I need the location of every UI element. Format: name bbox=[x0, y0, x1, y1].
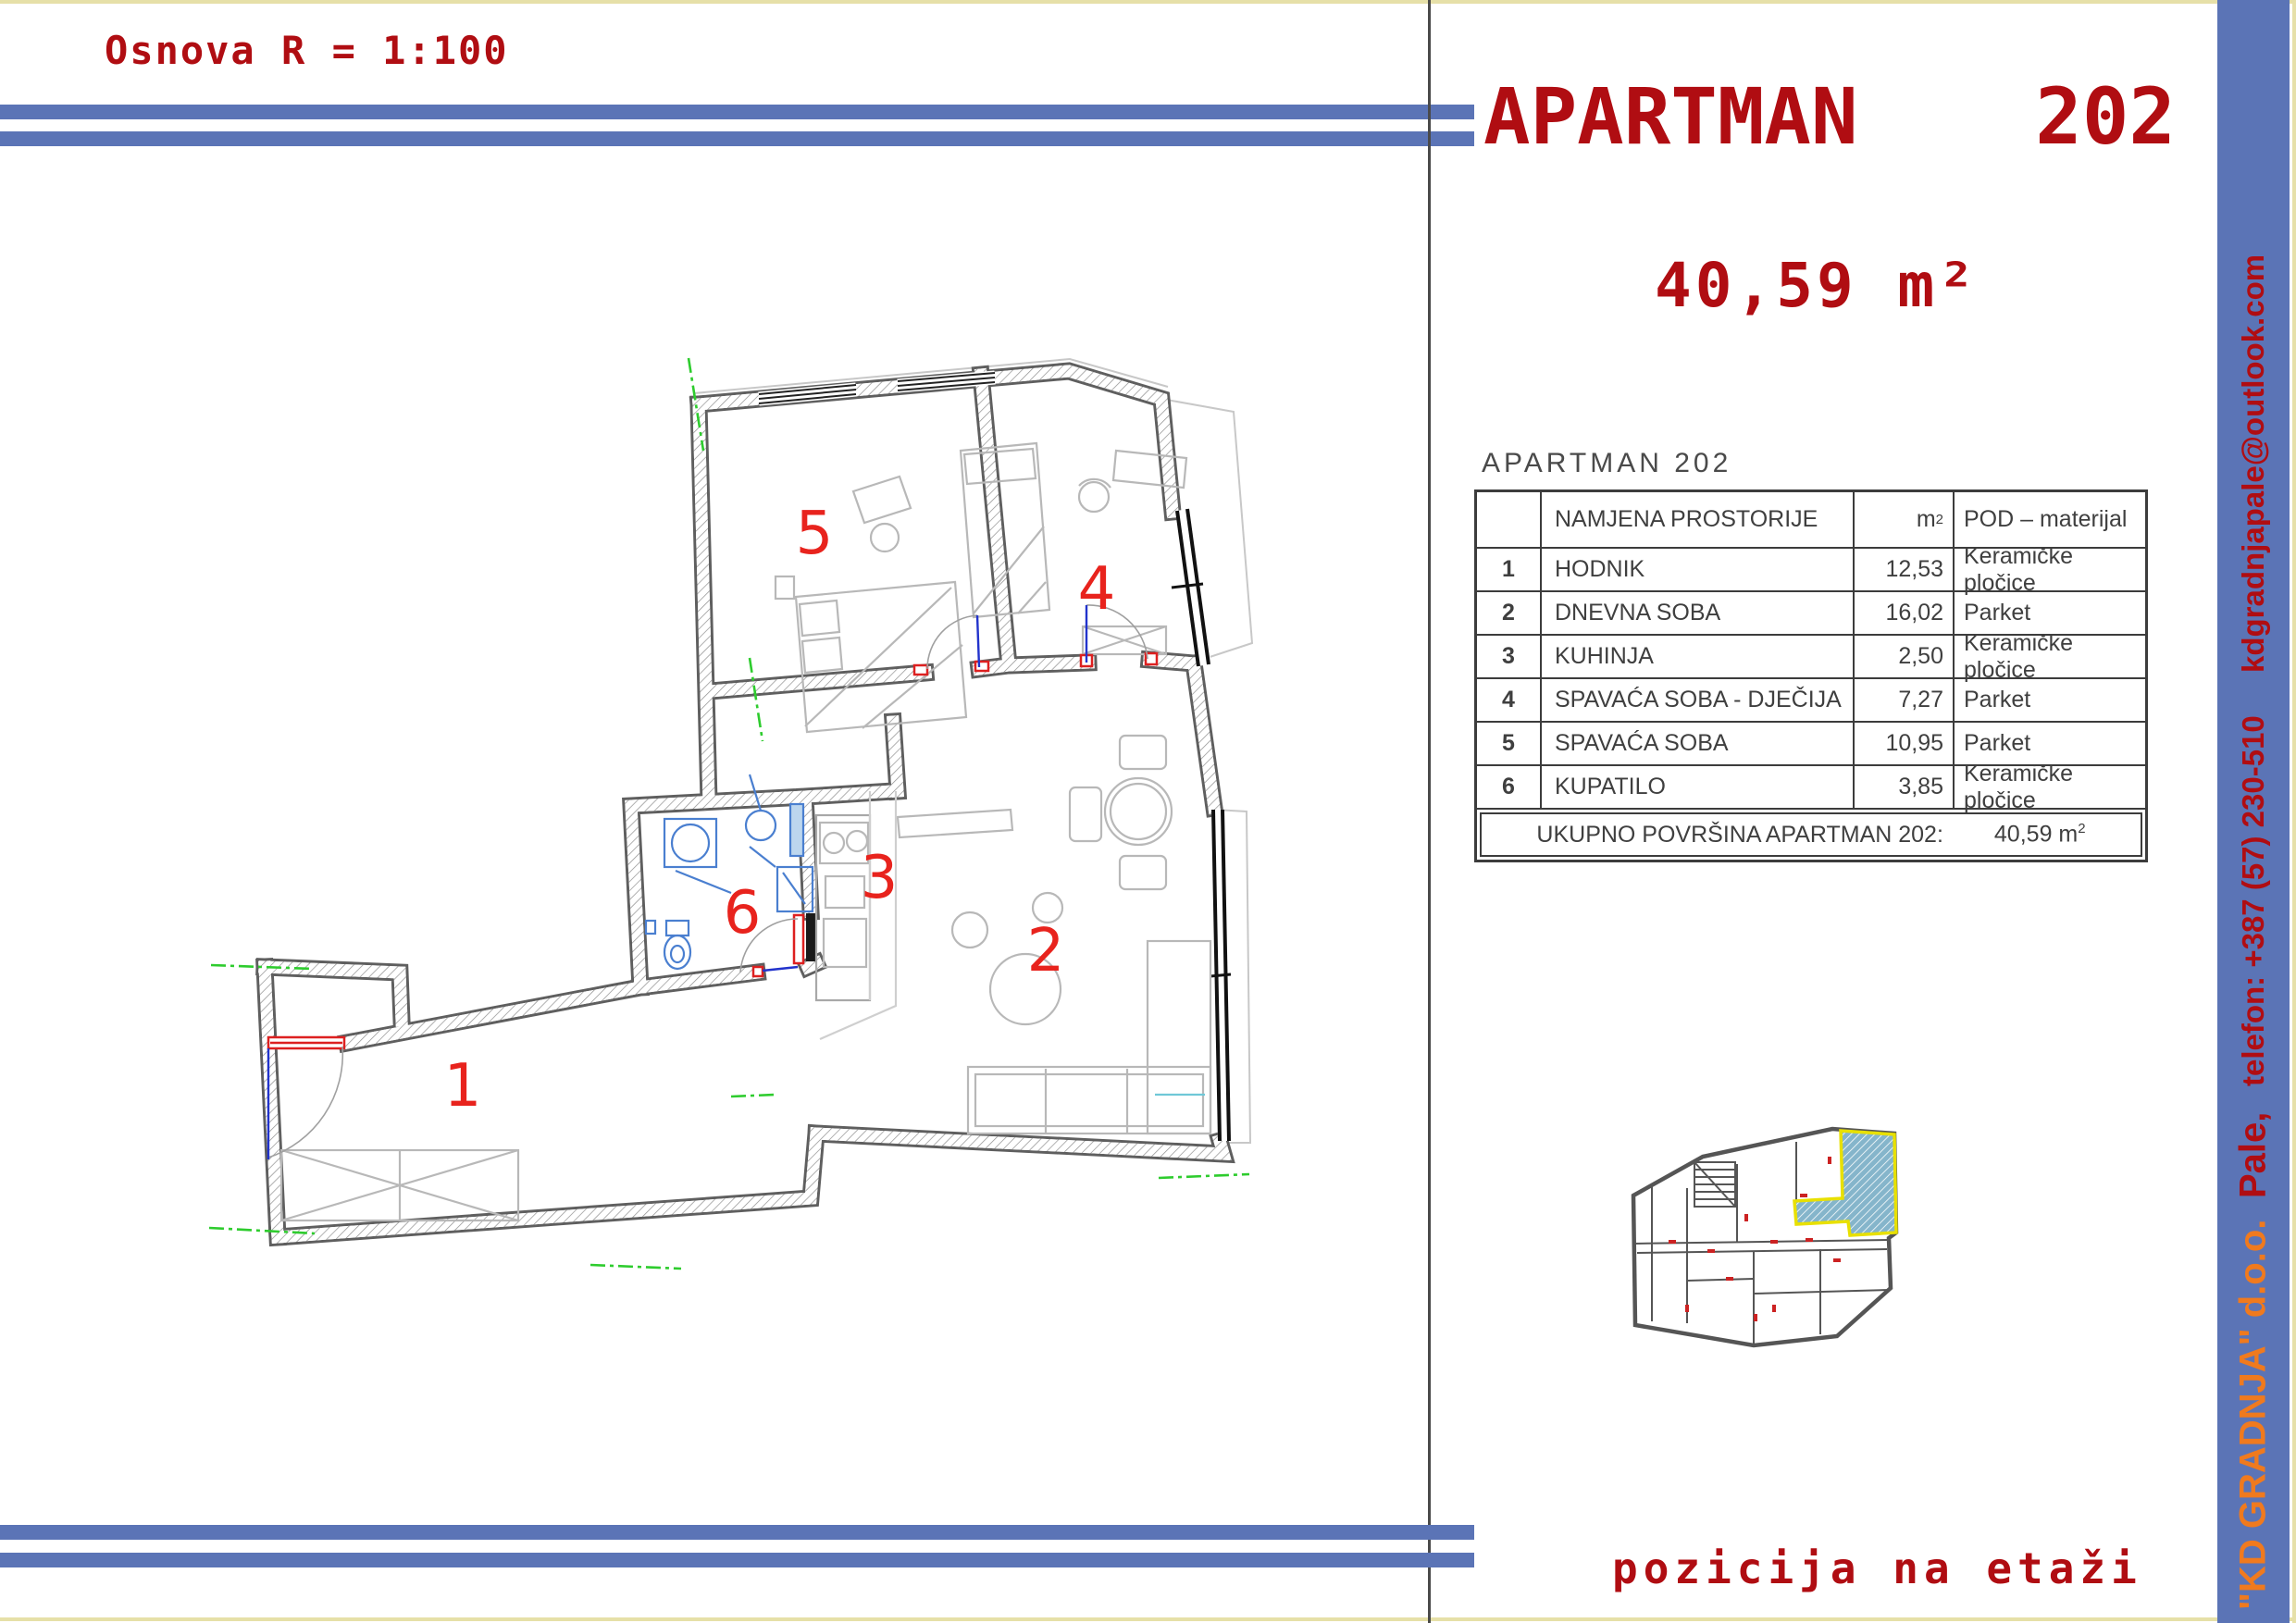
row-floor: Parket bbox=[1955, 600, 2145, 626]
total-value: 40,59 m2 bbox=[1994, 821, 2086, 848]
row-name: SPAVAĆA SOBA - DJEČIJA bbox=[1542, 679, 1855, 721]
row-no: 1 bbox=[1477, 549, 1542, 590]
row-name: DNEVNA SOBA bbox=[1542, 592, 1855, 634]
company-band-text: "KD GRADNJA" d.o.o. Pale, telefon: +387 … bbox=[2217, 0, 2290, 1623]
table-header-area: m2 bbox=[1855, 492, 1955, 547]
row-name: KUPATILO bbox=[1542, 766, 1855, 808]
table-row: 4 SPAVAĆA SOBA - DJEČIJA 7,27 Parket bbox=[1474, 677, 2148, 721]
area-sup: 2 bbox=[1936, 512, 1943, 527]
footer-rule-top bbox=[0, 1525, 1474, 1540]
total-value-number: 40,59 m bbox=[1994, 822, 2078, 848]
room-table: NAMJENA PROSTORIJE m2 POD – materijal 1 … bbox=[1474, 489, 2148, 862]
table-row: 3 KUHINJA 2,50 Keramičke pločice bbox=[1474, 634, 2148, 677]
table-total-row: UKUPNO POVRŠINA APARTMAN 202: 40,59 m2 bbox=[1474, 808, 2148, 862]
table-row: 6 KUPATILO 3,85 Keramičke pločice bbox=[1474, 764, 2148, 808]
furniture bbox=[281, 443, 1210, 1220]
table-heading: APARTMAN 202 bbox=[1482, 448, 1731, 479]
row-no: 4 bbox=[1477, 679, 1542, 721]
company-city-text: Pale, bbox=[2233, 1112, 2275, 1198]
table-header-floor: POD – materijal bbox=[1955, 506, 2145, 533]
scale-label: Osnova R = 1:100 bbox=[105, 28, 509, 73]
apartment-area: 40,59 m² bbox=[1655, 255, 1979, 316]
row-name: HODNIK bbox=[1542, 549, 1855, 590]
row-area: 3,85 bbox=[1855, 766, 1955, 808]
table-header-no bbox=[1477, 492, 1542, 547]
company-band: "KD GRADNJA" d.o.o. Pale, telefon: +387 … bbox=[2217, 0, 2290, 1623]
header-rule-top bbox=[0, 105, 1474, 119]
row-floor: Keramičke pločice bbox=[1955, 761, 2145, 814]
row-name: SPAVAĆA SOBA bbox=[1542, 723, 1855, 764]
header-rule-bottom bbox=[0, 131, 1474, 146]
total-value-sup: 2 bbox=[2078, 821, 2085, 836]
footer-rule-bottom bbox=[0, 1553, 1474, 1567]
area-unit: m bbox=[1917, 506, 1936, 533]
wall-stub-dark bbox=[806, 913, 816, 961]
position-map bbox=[1615, 1103, 1911, 1371]
row-no: 2 bbox=[1477, 592, 1542, 634]
table-header-row: NAMJENA PROSTORIJE m2 POD – materijal bbox=[1474, 489, 2148, 547]
window-living-right bbox=[1210, 810, 1231, 1141]
window-room4-right bbox=[1172, 509, 1209, 666]
row-area: 2,50 bbox=[1855, 636, 1955, 677]
row-floor: Keramičke pločice bbox=[1955, 630, 2145, 684]
row-no: 3 bbox=[1477, 636, 1542, 677]
row-no: 6 bbox=[1477, 766, 1542, 808]
table-row: 1 HODNIK 12,53 Keramičke pločice bbox=[1474, 547, 2148, 590]
window-top-1 bbox=[759, 385, 856, 403]
room-label-4: 4 bbox=[1078, 555, 1116, 624]
apartment-title-text: APARTMAN bbox=[1483, 78, 1858, 155]
table-total-inner: UKUPNO POVRŠINA APARTMAN 202: 40,59 m2 bbox=[1480, 812, 2142, 857]
row-floor: Parket bbox=[1955, 730, 2145, 757]
total-label: UKUPNO POVRŠINA APARTMAN 202: bbox=[1536, 822, 1943, 849]
drawing-sheet: Osnova R = 1:100 APARTMAN 202 40,59 m² A… bbox=[0, 0, 2296, 1623]
company-phone: telefon: +387 (57) 230-510 bbox=[2236, 715, 2271, 1086]
table-header-name: NAMJENA PROSTORIJE bbox=[1542, 492, 1855, 547]
row-floor: Keramičke pločice bbox=[1955, 543, 2145, 597]
room-label-3: 3 bbox=[861, 844, 899, 912]
row-area: 16,02 bbox=[1855, 592, 1955, 634]
room-label-5: 5 bbox=[796, 500, 834, 568]
axis-marks bbox=[209, 358, 1249, 1269]
row-name: KUHINJA bbox=[1542, 636, 1855, 677]
row-area: 7,27 bbox=[1855, 679, 1955, 721]
table-row: 5 SPAVAĆA SOBA 10,95 Parket bbox=[1474, 721, 2148, 764]
panel-divider bbox=[1428, 0, 1431, 1623]
company-city bbox=[2233, 1198, 2275, 1219]
floor-plan: 1 2 3 4 5 6 bbox=[157, 208, 1305, 1346]
room-label-2: 2 bbox=[1027, 917, 1065, 985]
page-border-bottom bbox=[0, 1617, 2296, 1621]
page-border-top bbox=[0, 0, 2296, 4]
company-email: kdgradnjapale@outlook.com bbox=[2236, 254, 2271, 673]
room-label-6: 6 bbox=[724, 879, 762, 948]
row-area: 12,53 bbox=[1855, 549, 1955, 590]
page-border-right bbox=[2292, 0, 2296, 1623]
apartment-title: APARTMAN 202 bbox=[1483, 78, 2176, 155]
company-name: "KD GRADNJA" d.o.o. bbox=[2233, 1220, 2275, 1610]
row-area: 10,95 bbox=[1855, 723, 1955, 764]
row-no: 5 bbox=[1477, 723, 1542, 764]
table-row: 2 DNEVNA SOBA 16,02 Parket bbox=[1474, 590, 2148, 634]
room-label-1: 1 bbox=[444, 1052, 482, 1121]
room-labels: 1 2 3 4 5 6 bbox=[444, 500, 1116, 1121]
row-floor: Parket bbox=[1955, 687, 2145, 713]
apartment-title-number: 202 bbox=[2035, 78, 2176, 155]
position-label: pozicija na etaži bbox=[1612, 1543, 2142, 1593]
